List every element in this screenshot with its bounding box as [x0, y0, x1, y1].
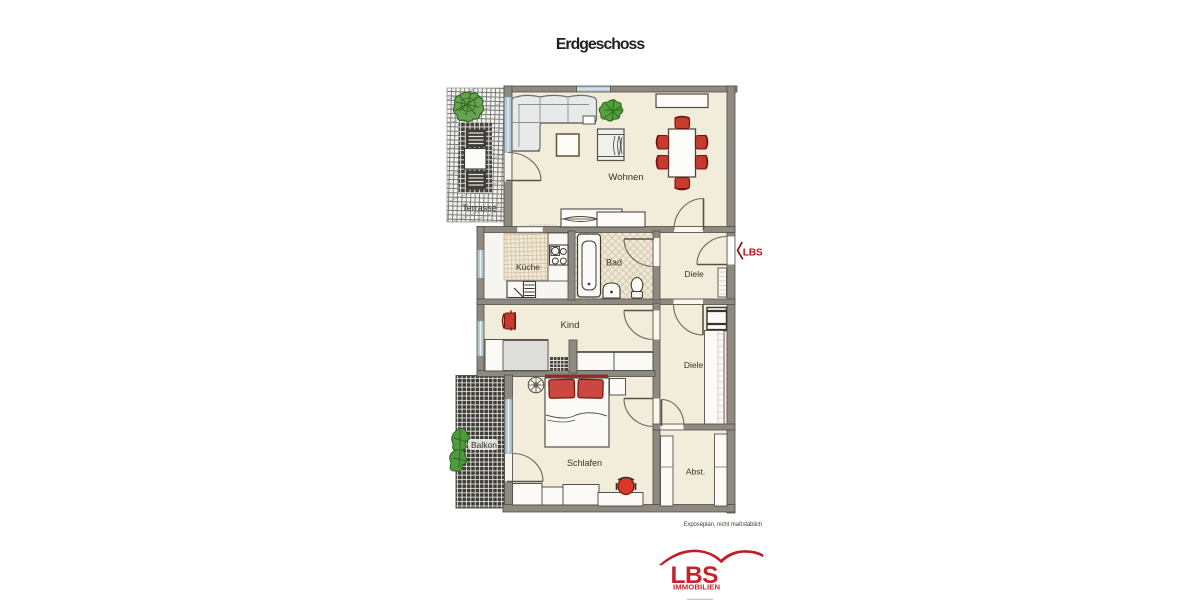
svg-text:Küche: Küche: [516, 262, 540, 272]
svg-text:Diele: Diele: [684, 269, 704, 279]
svg-text:IMMOBILIEN: IMMOBILIEN: [673, 583, 720, 592]
svg-text:Terrasse: Terrasse: [462, 203, 497, 213]
svg-text:Abst.: Abst.: [686, 467, 705, 477]
svg-text:Kind: Kind: [560, 320, 579, 331]
svg-text:Schlafen: Schlafen: [567, 458, 602, 468]
svg-text:Exposéplan, nicht maßstäblich: Exposéplan, nicht maßstäblich: [684, 522, 762, 528]
svg-text:Diele: Diele: [684, 360, 704, 370]
svg-text:Erdgeschoss: Erdgeschoss: [556, 36, 645, 53]
svg-text:Bad: Bad: [606, 258, 622, 268]
svg-text:Balkon: Balkon: [471, 440, 497, 450]
svg-text:Wohnen: Wohnen: [608, 172, 643, 183]
svg-text:LBS: LBS: [743, 247, 763, 258]
